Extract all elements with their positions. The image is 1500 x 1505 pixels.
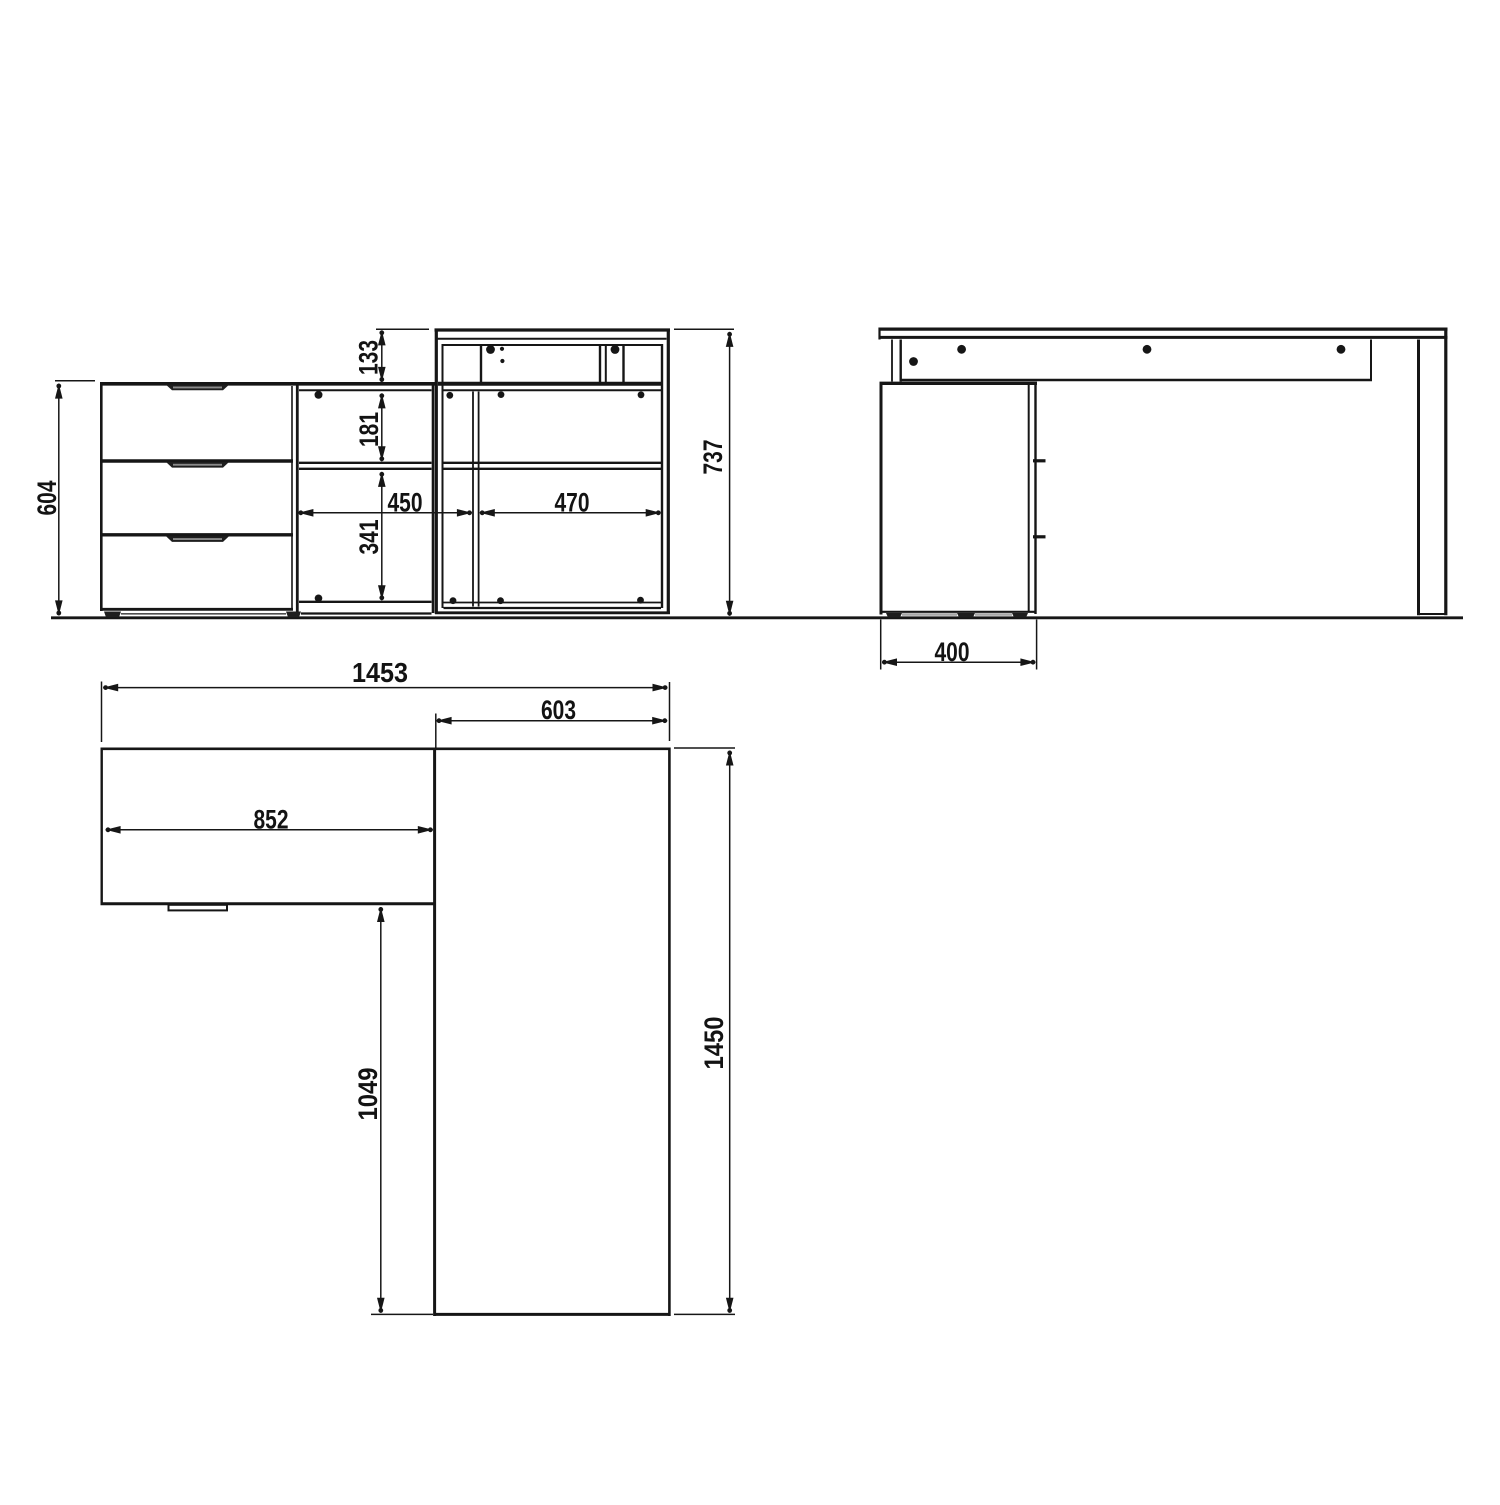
svg-text:133: 133 (354, 340, 384, 375)
svg-text:181: 181 (354, 412, 384, 447)
svg-text:1453: 1453 (352, 657, 408, 688)
svg-text:400: 400 (935, 637, 970, 667)
svg-text:604: 604 (32, 481, 62, 516)
svg-text:603: 603 (541, 695, 576, 725)
svg-text:852: 852 (254, 804, 289, 834)
svg-text:341: 341 (354, 520, 384, 555)
svg-text:1049: 1049 (353, 1068, 383, 1121)
svg-text:470: 470 (555, 487, 590, 517)
svg-text:737: 737 (698, 440, 728, 475)
svg-text:1450: 1450 (699, 1017, 729, 1070)
svg-text:450: 450 (388, 487, 423, 517)
